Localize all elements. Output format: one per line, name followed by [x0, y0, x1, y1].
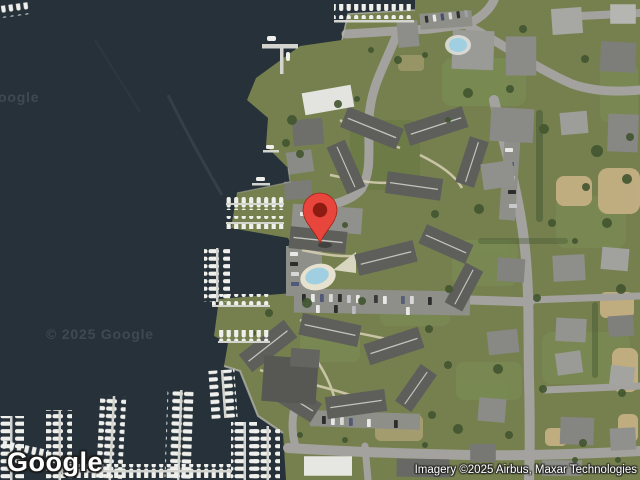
- satellite-imagery: [0, 0, 640, 480]
- pin-dot: [313, 203, 327, 217]
- satellite-map-view[interactable]: oogle © 2025 Google Google Imagery ©2025…: [0, 0, 640, 480]
- google-logo[interactable]: Google: [7, 447, 103, 478]
